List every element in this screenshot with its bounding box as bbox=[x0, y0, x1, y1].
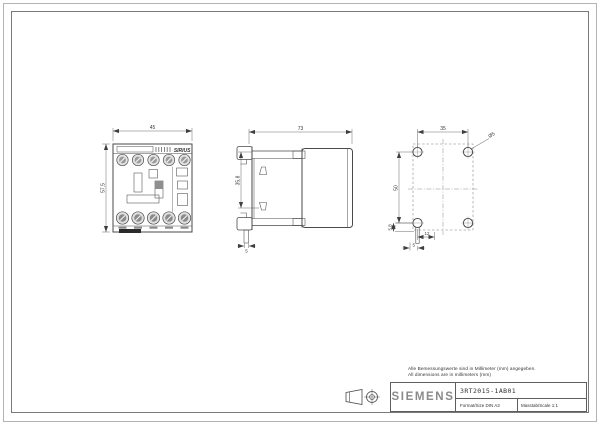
side-foot-dimension bbox=[238, 244, 256, 249]
note-line-german: Alle Bemessungswerte sind in Millimeter … bbox=[408, 366, 536, 372]
drill-offset-c-value: 5,8 bbox=[388, 224, 393, 231]
technical-drawing: 45 57,5 SIRIUS bbox=[0, 0, 600, 425]
product-brand-label: SIRIUS bbox=[174, 148, 191, 154]
siemens-logo: SIEMENS bbox=[391, 383, 456, 411]
din-clip-bottom bbox=[237, 218, 252, 231]
side-view: 73 35,8 bbox=[236, 126, 353, 254]
coil-housing bbox=[302, 149, 353, 228]
drilling-plan: 35 50 Ø5 12 bbox=[388, 126, 497, 251]
title-block: SIEMENS 3RT2015-1AB01 Format/Size DIN A3… bbox=[390, 382, 587, 412]
title-block-fields: 3RT2015-1AB01 Format/Size DIN A3 Masstab… bbox=[456, 383, 586, 411]
mounting-holes bbox=[411, 146, 475, 230]
format-field: Format/Size DIN A3 bbox=[456, 399, 518, 411]
latch-tab-top bbox=[260, 167, 267, 175]
note-line-english: All dimensions are in millimeters (mm) bbox=[408, 372, 536, 378]
front-height-value: 57,5 bbox=[101, 183, 107, 193]
drill-offset-b-value: 5 bbox=[413, 243, 416, 248]
front-view: 45 57,5 SIRIUS bbox=[101, 125, 193, 233]
drill-spacing-x-value: 35 bbox=[440, 126, 446, 132]
drill-offset-c-dimension bbox=[394, 223, 415, 232]
din-clip-top bbox=[237, 147, 252, 160]
drawing-sheet: 45 57,5 SIRIUS bbox=[0, 0, 600, 425]
side-depth-value: 73 bbox=[298, 126, 304, 132]
hole-diameter-leader bbox=[471, 139, 489, 150]
type-plate bbox=[119, 229, 141, 233]
drill-spacing-y-value: 50 bbox=[394, 185, 400, 191]
side-foot-value: 5 bbox=[245, 249, 248, 254]
clip-foot bbox=[244, 230, 249, 243]
first-angle-projection-icon bbox=[346, 389, 380, 405]
latch-tab-bottom bbox=[260, 203, 267, 211]
drill-offset-a-value: 12 bbox=[424, 231, 430, 236]
part-number: 3RT2015-1AB01 bbox=[456, 383, 586, 399]
side-clip-value: 35,8 bbox=[236, 175, 242, 185]
scale-field: Masstab/Scale 1:1 bbox=[518, 399, 586, 411]
hole-diameter-value: Ø5 bbox=[487, 131, 496, 140]
front-width-value: 45 bbox=[150, 125, 156, 131]
dimension-notes: Alle Bemessungswerte sind in Millimeter … bbox=[408, 366, 536, 377]
